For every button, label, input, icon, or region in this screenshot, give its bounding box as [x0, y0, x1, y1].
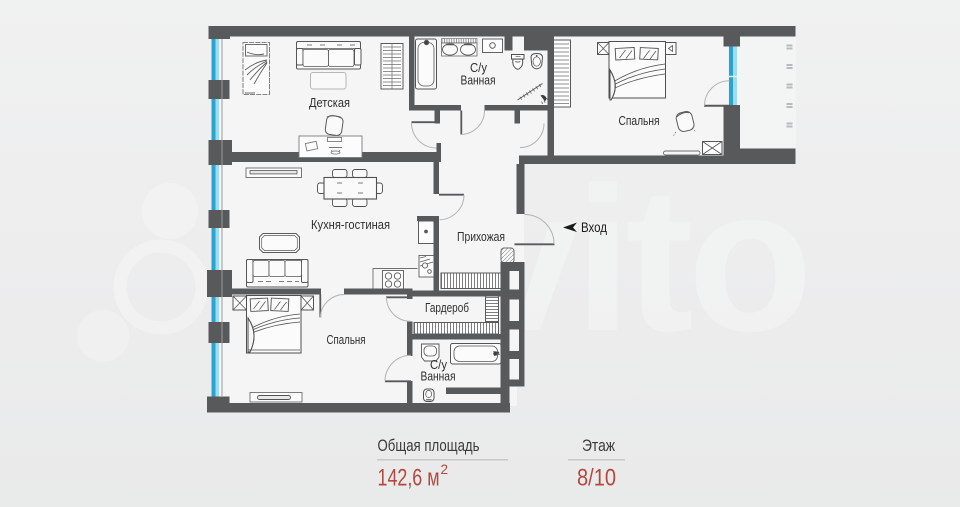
svg-text:Детская: Детская [309, 96, 350, 110]
svg-text:Общая площадь: Общая площадь [378, 436, 480, 455]
svg-text:Спальня: Спальня [619, 114, 660, 128]
svg-text:Спальня: Спальня [327, 333, 366, 347]
svg-text:Ванная: Ванная [421, 370, 456, 384]
svg-text:2: 2 [441, 462, 449, 477]
svg-text:8/10: 8/10 [577, 465, 616, 492]
svg-text:Вход: Вход [581, 220, 607, 235]
svg-text:Кухня-гостиная: Кухня-гостиная [311, 218, 390, 232]
svg-text:142,6 м: 142,6 м [378, 465, 440, 492]
svg-text:Гардероб: Гардероб [425, 301, 469, 315]
svg-text:Этаж: Этаж [582, 436, 616, 455]
svg-text:Ванная: Ванная [461, 74, 496, 88]
svg-text:Прихожая: Прихожая [457, 230, 505, 244]
